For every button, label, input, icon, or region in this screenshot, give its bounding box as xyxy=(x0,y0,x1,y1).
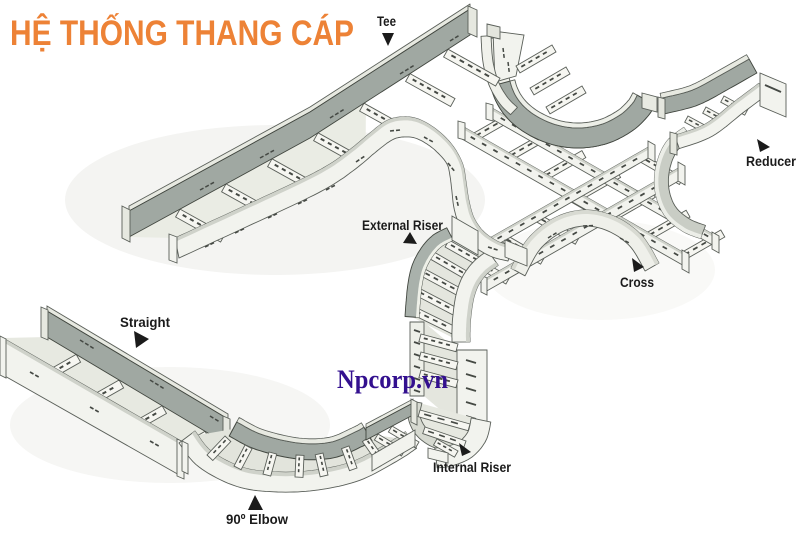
svg-text:Internal Riser: Internal Riser xyxy=(433,460,511,476)
svg-text:External Riser: External Riser xyxy=(362,218,443,234)
svg-text:Npcorp.vn: Npcorp.vn xyxy=(337,365,448,394)
svg-text:Cross: Cross xyxy=(620,275,654,291)
svg-text:HỆ THỐNG THANG CÁP: HỆ THỐNG THANG CÁP xyxy=(10,13,354,53)
svg-text:90º Elbow: 90º Elbow xyxy=(226,512,289,528)
svg-text:Straight: Straight xyxy=(120,315,170,331)
svg-text:Reducer: Reducer xyxy=(746,154,796,170)
svg-text:Tee: Tee xyxy=(377,14,396,30)
